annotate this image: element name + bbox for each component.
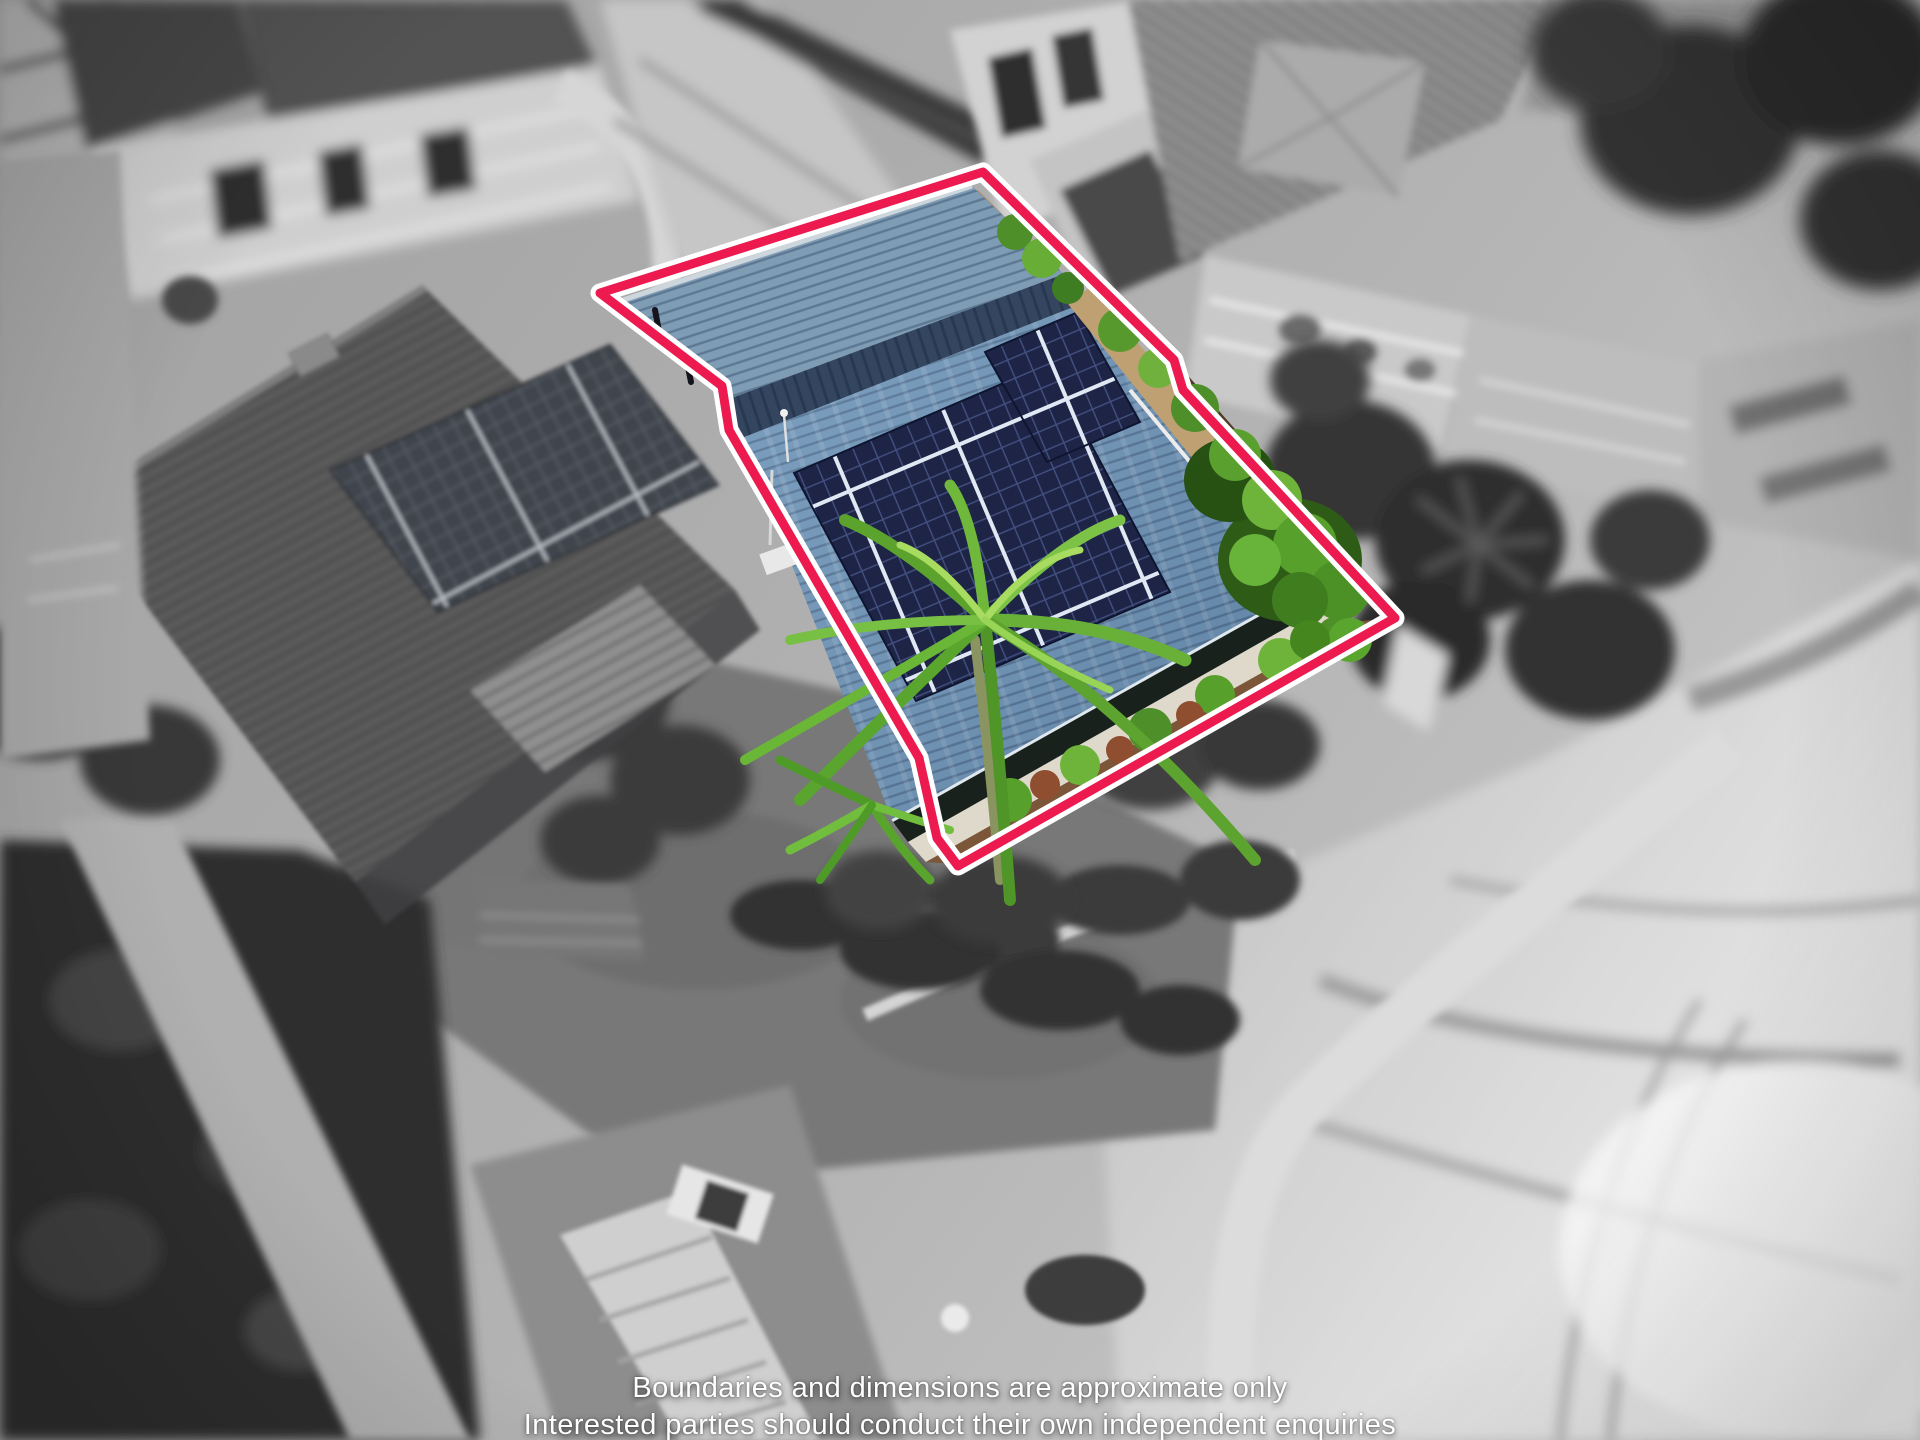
photo-canvas — [0, 0, 1920, 1440]
disclaimer-line-1: Boundaries and dimensions are approximat… — [0, 1370, 1920, 1407]
disclaimer-text: Boundaries and dimensions are approximat… — [0, 1370, 1920, 1440]
vignette-overlay — [0, 0, 1920, 1440]
aerial-photo: Boundaries and dimensions are approximat… — [0, 0, 1920, 1440]
disclaimer-line-2: Interested parties should conduct their … — [0, 1407, 1920, 1440]
